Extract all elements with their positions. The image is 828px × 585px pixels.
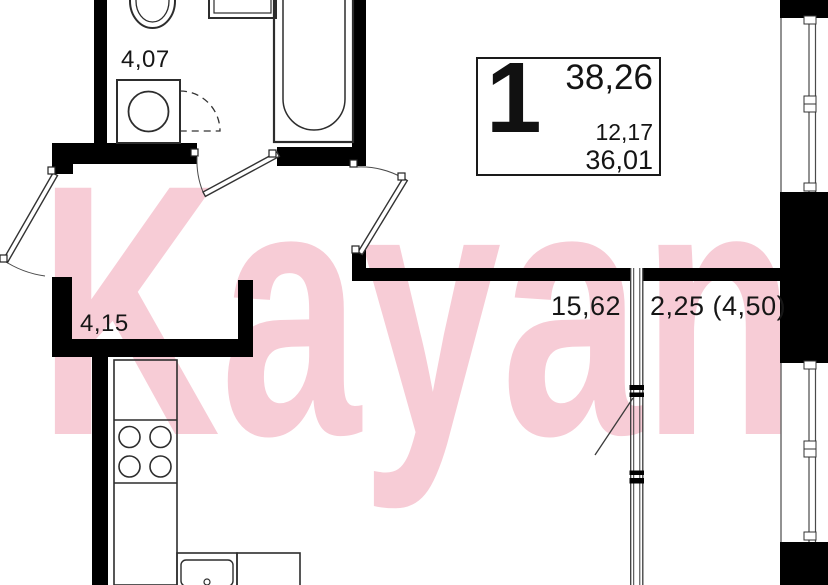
bathroom-area-label: 4,07 — [121, 48, 170, 72]
balcony-area-label: 2,25 (4,50) — [650, 293, 786, 320]
wall-right-middle — [780, 192, 828, 363]
wall-right-top — [780, 0, 828, 18]
apartment-info-box: 1 38,26 12,17 36,01 — [476, 57, 661, 176]
hallway-area-label: 4,15 — [80, 312, 129, 336]
kitchen-counter-section — [237, 553, 300, 585]
wall-kitchen-left — [92, 357, 108, 585]
wall-hallway-bottom — [52, 339, 253, 357]
wall-bathroom-left — [94, 0, 107, 144]
area-figures: 38,26 12,17 36,01 — [565, 60, 653, 174]
wall-hallway-stub — [238, 280, 253, 357]
kitchen-sink — [177, 553, 237, 585]
total-area: 38,26 — [565, 60, 653, 95]
floor-plan: Kayan — [0, 0, 828, 585]
area-without-balcony: 36,01 — [585, 147, 653, 174]
wall-right-bottom — [780, 542, 828, 585]
wall-main-horizontal-left — [352, 268, 630, 281]
kitchen-living-room-area-label: 15,62 — [551, 293, 621, 320]
living-area: 12,17 — [595, 121, 653, 144]
rooms-count: 1 — [486, 48, 542, 148]
wall-main-horizontal-right — [643, 268, 783, 281]
wall-bathroom-bottom-left — [52, 143, 197, 164]
wall-room-left-top — [352, 0, 366, 166]
toilet — [130, 0, 175, 28]
washbasin — [209, 0, 276, 18]
